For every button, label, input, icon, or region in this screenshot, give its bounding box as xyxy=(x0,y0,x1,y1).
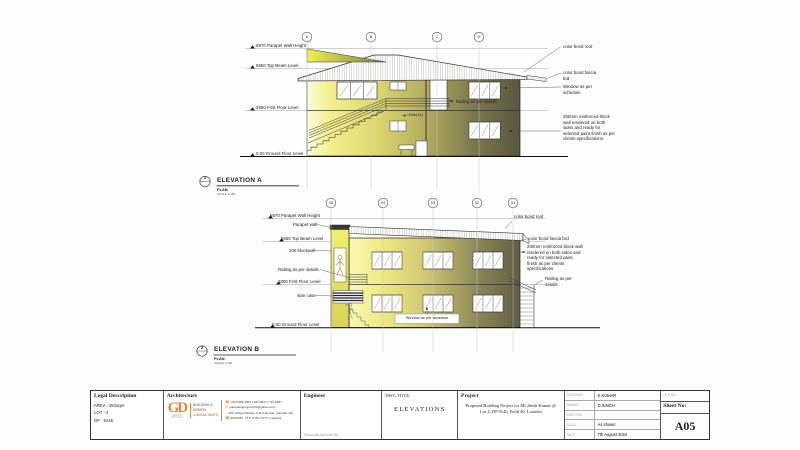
meta-row-checked: CHECKED xyxy=(565,411,661,421)
meta-label: DESIGNED xyxy=(565,391,595,400)
level-label-parapet-b: 6970 Parapet Wall Height xyxy=(270,213,320,219)
note-roof-a: color bond roof xyxy=(563,44,592,50)
architecture-cell: Architecture GD GRACE DESIGN BUILDING & … xyxy=(164,391,301,439)
fax-icon: ▤ xyxy=(245,416,248,420)
project-header: Project xyxy=(458,391,564,399)
level-label-ground-b: 0.00 Ground Floor Level xyxy=(272,322,319,328)
meta-label: DRAWN xyxy=(565,401,595,410)
legal-description-cell: Legal Description AREA : 352sqm LOT : 4 … xyxy=(91,391,164,439)
sheet-no-value: A05 xyxy=(661,414,709,439)
meta-table: DESIGNED K.KUMAR DRAWN D.SINGH CHECKED S… xyxy=(565,391,662,439)
meta-value: As shown xyxy=(595,422,616,427)
contact-block: ☎+679 999 9457 | 921 0937 | 721 0937 ✉gr… xyxy=(221,400,298,421)
note-wall-b: 200mm reinforced block wall rendered on … xyxy=(527,244,583,272)
meta-value: D.SINGH xyxy=(595,403,615,408)
meta-row-drawn: DRAWN D.SINGH xyxy=(565,401,661,411)
grid-bubble-c: C xyxy=(431,34,443,39)
note-staircase-b: stair case xyxy=(297,293,316,299)
location-icon: ⌂ xyxy=(225,411,227,415)
note-roof-b: color bond roof xyxy=(514,214,543,220)
approved-by-label: Structurals Approved By: xyxy=(304,433,339,437)
grid-bubble-b: B xyxy=(365,34,377,39)
meta-row-date: DATE 7th August 2024 xyxy=(565,430,661,439)
drawing-linework xyxy=(0,0,800,450)
company-logo: GD GRACE DESIGN xyxy=(167,402,187,420)
sheet-no-label: Sheet No: xyxy=(661,402,709,414)
contact-phone2: 999 9457 xyxy=(230,416,243,420)
logo-tagline: BUILDING & DESIGN CONSULTANTS xyxy=(190,403,218,418)
mail-icon: ✉ xyxy=(225,405,228,409)
note-railing-right-b: Railing as per details xyxy=(545,276,573,287)
grid-bubble-04: 04 xyxy=(377,200,389,205)
legal-header: Legal Description xyxy=(91,391,163,399)
engineer-header: Engineer xyxy=(301,391,382,399)
dwg-title-value: ELEVATIONS xyxy=(382,406,457,413)
note-window-b: Window as per schedule xyxy=(395,316,459,321)
logo-mark: GD xyxy=(167,402,187,416)
legal-area: AREA : 352sqm xyxy=(94,402,163,409)
detail-ref-number-a: 1 xyxy=(200,175,210,180)
elevation-a-scale: SCALE 1:100 xyxy=(217,192,235,196)
meta-row-scale: SCALE As shown xyxy=(565,420,661,430)
elevation-a-art xyxy=(200,32,568,190)
logo-subtext: GRACE DESIGN xyxy=(167,415,187,419)
grid-bubble-01: 01 xyxy=(507,200,519,205)
meta-value: 7th August 2024 xyxy=(595,432,628,437)
phone-icon: ☎ xyxy=(225,400,229,404)
contact-phone: +679 999 9457 | 921 0937 | 721 0937 xyxy=(230,400,282,404)
project-cell: Project Proposed Building Project for Mr… xyxy=(458,391,565,439)
level-label-firstfloor-a: 2800 First Floor Level xyxy=(256,105,298,111)
meta-label: CHECKED xyxy=(565,411,595,420)
meta-row-designed: DESIGNED K.KUMAR xyxy=(565,391,661,401)
level-label-ground-a: 0.00 Ground Floor Level xyxy=(256,151,303,157)
level-label-topbeam-a: 5650 Top Beam Level xyxy=(256,63,298,69)
architecture-header: Architecture xyxy=(164,391,300,399)
note-parapet-wall-b: Parapet wall xyxy=(293,222,317,228)
level-label-parapet-a: 6970 Parapet Wall Height xyxy=(256,43,306,49)
grid-bubble-03: 03 xyxy=(427,200,439,205)
meta-label: SCALE xyxy=(565,420,595,429)
note-wall-a: 200mm reinforced block wall rendered on … xyxy=(563,114,615,142)
file-no-label: FILE NO: xyxy=(661,391,709,402)
phone2-icon: ☎ xyxy=(225,416,229,420)
note-downpipe-a: 100dia Dp xyxy=(407,113,422,117)
contact-address: 191 Village Parade, A.N.Z Arcade, Lautok… xyxy=(228,411,292,415)
dwg-title-label: DWG TITLE: xyxy=(382,391,457,398)
note-fascia-a: color bond fascia brd xyxy=(563,70,597,81)
elevation-b-art xyxy=(197,198,600,356)
contact-email: gracedesigngroup70@yahoo.com xyxy=(229,405,275,409)
note-railing-left-b: Railing as per details xyxy=(278,267,319,273)
dwg-title-cell: DWG TITLE: ELEVATIONS xyxy=(382,391,458,439)
grid-bubble-a: A xyxy=(301,34,313,39)
contact-pobox: P O Box 5777, Lautoka xyxy=(249,416,281,420)
level-label-firstfloor-b: 2800 First Floor Level xyxy=(278,279,320,285)
engineer-cell: Engineer Structurals Approved By: xyxy=(301,391,383,439)
tagline-3: CONSULTANTS xyxy=(193,413,218,418)
elevation-b-title: ELEVATION B xyxy=(214,346,259,353)
meta-label: DATE xyxy=(565,430,595,439)
drawing-sheet: A B C D 6970 Parapet Wall Height 5650 To… xyxy=(0,0,800,450)
note-blockwall-b: 200 blockwall xyxy=(289,248,315,254)
grid-bubble-02: 02 xyxy=(471,200,483,205)
elevation-a-title: ELEVATION A xyxy=(217,177,262,184)
sheet-number-cell: FILE NO: Sheet No: A05 xyxy=(661,391,709,439)
legal-lot: LOT : 4 xyxy=(94,409,163,416)
title-block: Legal Description AREA : 352sqm LOT : 4 … xyxy=(90,390,710,440)
detail-ref-number-b: 2 xyxy=(197,345,207,350)
note-window-a: Window as per schedule xyxy=(563,84,597,95)
meta-value: K.KUMAR xyxy=(595,393,617,398)
elevation-b-scale: SCALE 1:100 xyxy=(214,361,232,365)
note-railing-a: Railing as per details xyxy=(456,99,497,105)
note-fascia-b: color bond fascia brd xyxy=(528,236,569,242)
grid-bubble-d: D xyxy=(473,34,485,39)
legal-dp: DP : 9145 xyxy=(94,417,163,424)
level-label-topbeam-b: 5650 Top Beam Level xyxy=(281,236,323,242)
grid-bubble-05: 05 xyxy=(325,200,337,205)
project-description: Proposed Building Project for Mr Jitesh … xyxy=(458,399,564,416)
